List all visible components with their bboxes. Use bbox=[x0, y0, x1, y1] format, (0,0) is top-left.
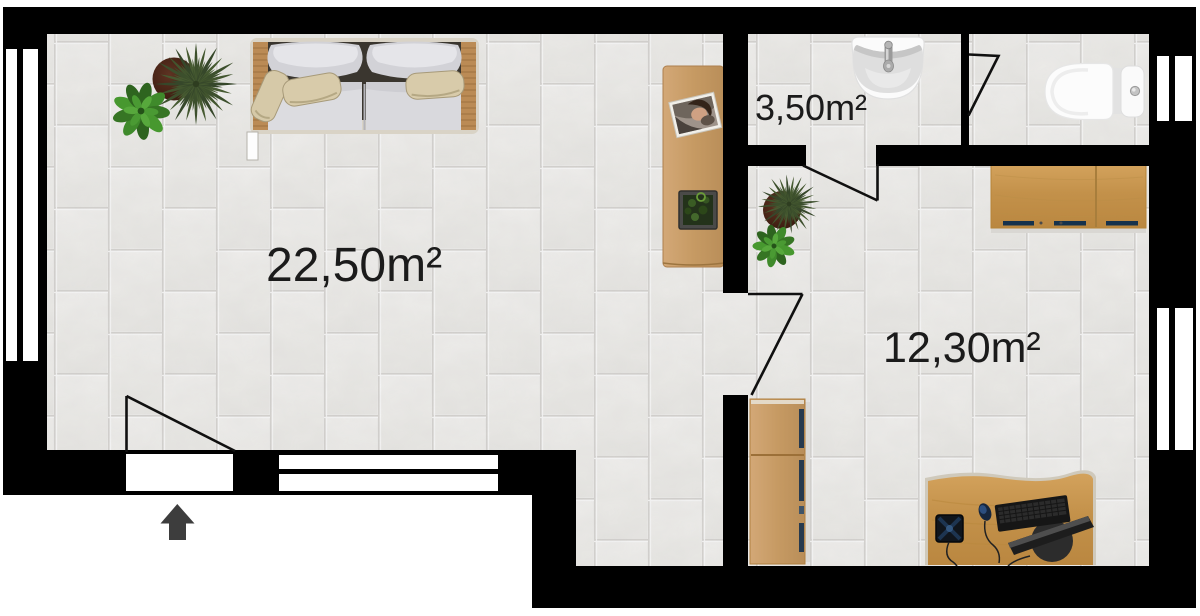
svg-text:3,50m²: 3,50m² bbox=[755, 87, 867, 128]
svg-text:12,30m²: 12,30m² bbox=[883, 324, 1041, 372]
svg-text:22,50m²: 22,50m² bbox=[266, 239, 442, 292]
